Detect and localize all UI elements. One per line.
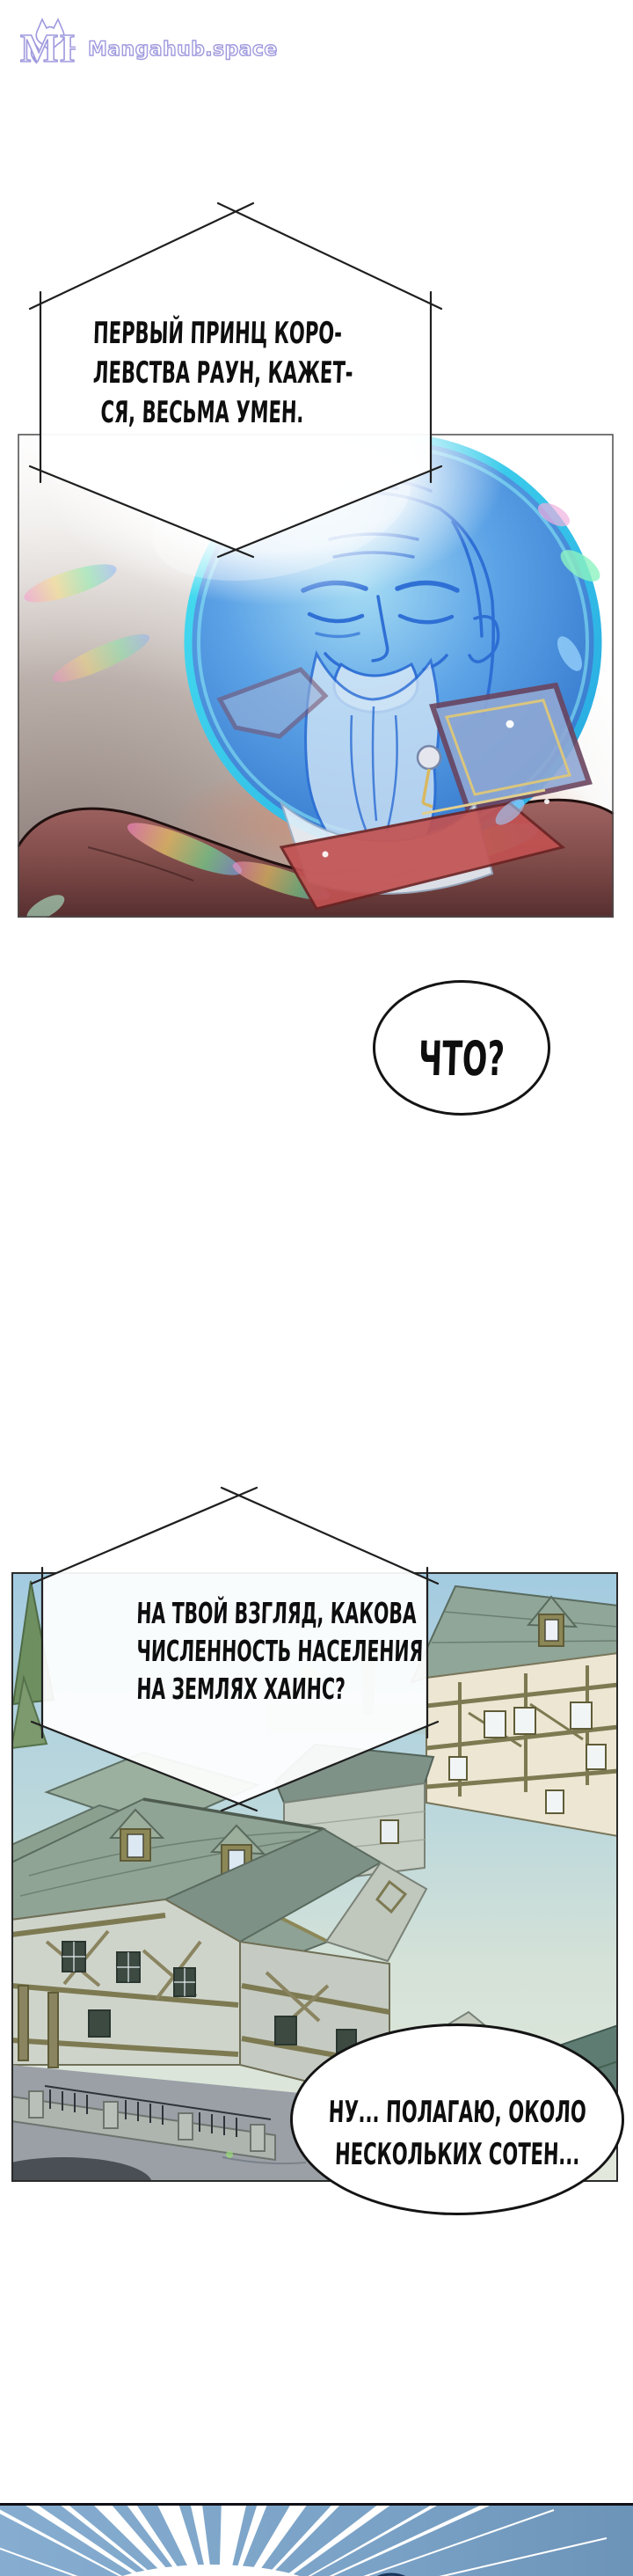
speech-text-4: НУ... ПОЛАГАЮ, ОКОЛО НЕСКОЛЬКИХ СОТЕН...: [250, 2089, 633, 2174]
site-logo[interactable]: MH Mangahub.space: [0, 0, 281, 70]
speech-text-2: ЧТО?: [418, 1033, 506, 1086]
brand-text[interactable]: Mangahub.space: [88, 39, 278, 61]
speech-bubble-2: ЧТО?: [373, 980, 550, 1116]
speech-text-1: ПЕРВЫЙ ПРИНЦ КОРО- ЛЕВСТВА РАУН, КАЖЕТ- …: [26, 314, 378, 433]
speech-bubble-4: НУ... ПОЛАГАЮ, ОКОЛО НЕСКОЛЬКИХ СОТЕН...: [290, 2023, 624, 2215]
svg-text:MH: MH: [20, 26, 76, 65]
speech-text-3: НА ТВОЙ ВЗГЛЯД, КАКОВА ЧИСЛЕННОСТЬ НАСЕЛ…: [76, 1594, 393, 1708]
mangahub-logo-icon: MH: [19, 16, 76, 65]
page-root: MH Mangahub.space: [0, 0, 633, 2576]
panel-burst: [0, 2503, 633, 2576]
